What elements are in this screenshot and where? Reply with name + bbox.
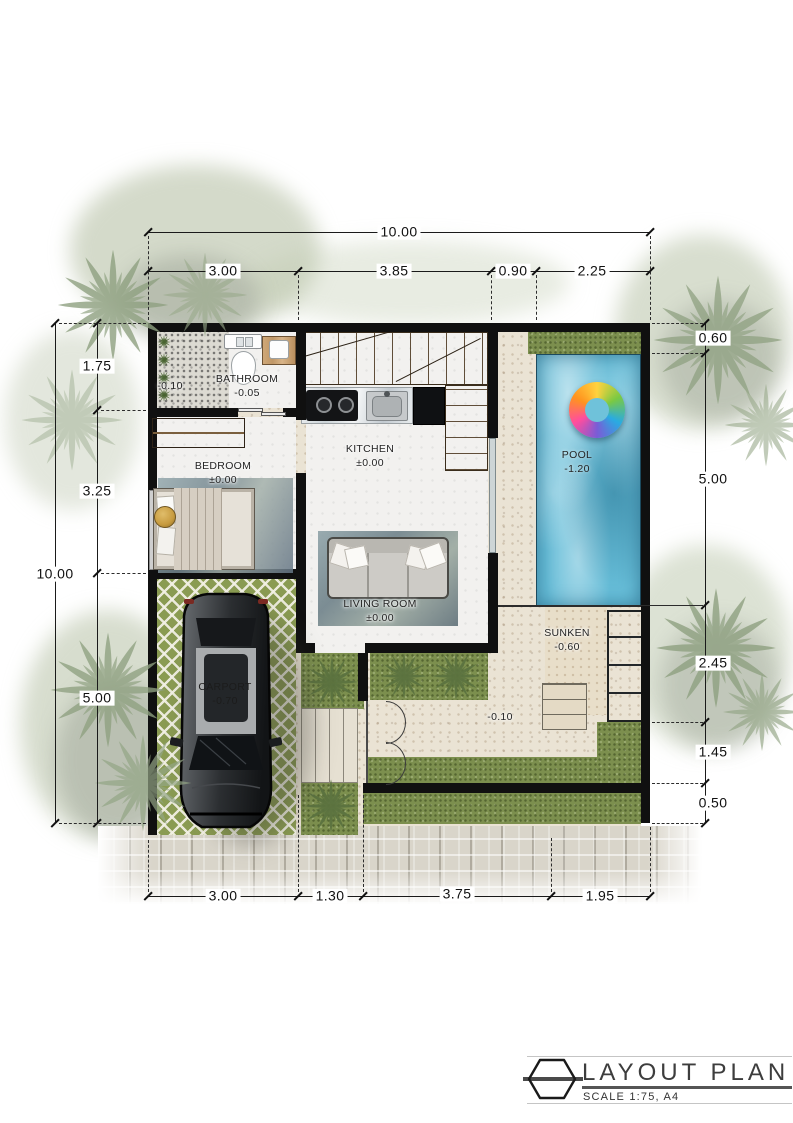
title-block-rule-bottom (527, 1103, 792, 1104)
dim-extension (650, 827, 651, 892)
sofa-pillow (344, 545, 369, 570)
palm-tree-icon (17, 365, 127, 475)
dim-bottom-0: 3.00 (206, 889, 241, 904)
refrigerator (413, 387, 445, 425)
staircase-lower-run (445, 385, 488, 471)
patio-level-label: -0.10 (157, 379, 182, 393)
dim-extension (652, 823, 703, 824)
wardrobe (152, 418, 245, 448)
entry-door-line (366, 701, 368, 783)
site-plan: -0.10 BATHROOM -0.05 BEDROOM ±0.00 KITCH… (148, 323, 650, 835)
dim-extension (652, 783, 703, 784)
dim-right-2: 2.45 (696, 656, 731, 671)
dim-top-1: 3.85 (377, 264, 412, 279)
wall-south (363, 783, 650, 793)
fern-icon (302, 777, 360, 835)
palm-tree-icon (91, 731, 196, 836)
bathroom-name: BATHROOM (216, 372, 278, 386)
terrace-level-label: -0.10 (487, 710, 512, 724)
title-block: LAYOUT PLAN SCALE 1:75, A4 (527, 1053, 792, 1107)
pool-head-grass (528, 330, 641, 354)
fern-icon (430, 650, 482, 702)
frontyard-grass-strip (363, 793, 641, 824)
dim-left-2: 5.00 (80, 691, 115, 706)
pool-level: -1.20 (562, 462, 592, 476)
terrace-grass-patch (597, 722, 641, 783)
dim-right-3: 1.45 (696, 745, 731, 760)
sunken-label: SUNKEN -0.60 (544, 626, 590, 654)
dim-left-0: 1.75 (80, 359, 115, 374)
stove-burner (338, 397, 354, 413)
sunken-steps (542, 683, 587, 730)
palm-tree-icon (721, 380, 793, 470)
wall-bathroom-south (157, 408, 238, 417)
dim-extension (298, 275, 299, 320)
dim-extension (363, 795, 364, 892)
dim-extension (551, 838, 552, 892)
wall-living-east (488, 332, 498, 438)
bathroom-sliding-door (261, 412, 286, 416)
bed-pillow (156, 526, 176, 555)
dim-extension (652, 722, 703, 723)
pool-label: POOL -1.20 (562, 448, 592, 476)
terrace-level: -0.10 (487, 711, 512, 723)
bedroom-name: BEDROOM (195, 459, 251, 473)
bedroom-label: BEDROOM ±0.00 (195, 459, 251, 487)
dim-extension (148, 236, 149, 320)
dim-extension (298, 795, 299, 892)
north-symbol-icon (527, 1058, 577, 1100)
vanity-sink (269, 340, 289, 359)
patio-level: -0.10 (157, 380, 182, 392)
palm-tree-icon (720, 670, 793, 755)
dim-extension (652, 323, 703, 324)
sheet-title: LAYOUT PLAN (582, 1059, 789, 1087)
sunken-bench (607, 610, 645, 722)
kitchen-level: ±0.00 (346, 456, 394, 470)
dim-extension (101, 573, 146, 574)
dim-top-0: 3.00 (206, 264, 241, 279)
dim-right-1: 5.00 (696, 472, 731, 487)
bedroom-level: ±0.00 (195, 473, 251, 487)
carport-name: CARPORT (198, 680, 251, 694)
wall-bedroom-east (296, 332, 306, 420)
swim-ring-hole (585, 398, 609, 422)
dim-extension (59, 323, 146, 324)
dim-bottom-3: 1.95 (583, 889, 618, 904)
dim-extension-solid (641, 605, 703, 606)
dim-bottom-2: 3.75 (440, 887, 475, 902)
dim-extension (652, 353, 703, 354)
dim-right-0: 0.60 (696, 331, 731, 346)
dim-extension (101, 410, 146, 411)
kitchen-faucet (384, 391, 390, 397)
bedside-stool (154, 506, 176, 528)
title-block-rule-top (527, 1056, 792, 1057)
dim-extension (536, 275, 537, 320)
title-underline (582, 1086, 792, 1089)
fern-icon (304, 654, 360, 710)
staircase-upper-run (301, 332, 488, 385)
bed-blanket (174, 488, 222, 570)
dim-left-1: 3.25 (80, 484, 115, 499)
palm-tree-icon (53, 245, 173, 365)
dim-top-2: 0.90 (496, 264, 531, 279)
kitchen-label: KITCHEN ±0.00 (346, 442, 394, 470)
stove-burner (316, 397, 332, 413)
sunken-name: SUNKEN (544, 626, 590, 640)
bathroom-level: -0.05 (216, 386, 278, 400)
carport-label: CARPORT -0.70 (198, 680, 251, 708)
carport-level: -0.70 (198, 694, 251, 708)
dim-extension (59, 823, 146, 824)
dim-bottom-1: 1.30 (313, 889, 348, 904)
wall-living-east (488, 553, 498, 653)
living-room-name: LIVING ROOM (343, 597, 416, 611)
dim-left-total: 10.00 (33, 567, 76, 582)
wall-bedroom-east (296, 473, 306, 653)
living-room-level: ±0.00 (343, 611, 416, 625)
kitchen-name: KITCHEN (346, 442, 394, 456)
dim-top-3: 2.25 (575, 264, 610, 279)
sliding-glass-door (489, 438, 496, 553)
dim-right-4: 0.50 (696, 796, 731, 811)
wall-living-south (296, 643, 315, 653)
fern-icon (379, 651, 429, 701)
dim-extension (148, 840, 149, 892)
dim-extension (650, 236, 651, 320)
dim-top-total: 10.00 (377, 225, 420, 240)
layout-plan-sheet: -0.10 BATHROOM -0.05 BEDROOM ±0.00 KITCH… (0, 0, 793, 1123)
kitchen-sink-basin (372, 396, 402, 417)
living-room-label: LIVING ROOM ±0.00 (343, 597, 416, 625)
pool-name: POOL (562, 448, 592, 462)
sunken-level: -0.60 (544, 640, 590, 654)
bathroom-sliding-door (238, 408, 263, 412)
bathroom-label: BATHROOM -0.05 (216, 372, 278, 400)
dim-extension (491, 275, 492, 320)
sheet-scale: SCALE 1:75, A4 (583, 1091, 679, 1103)
